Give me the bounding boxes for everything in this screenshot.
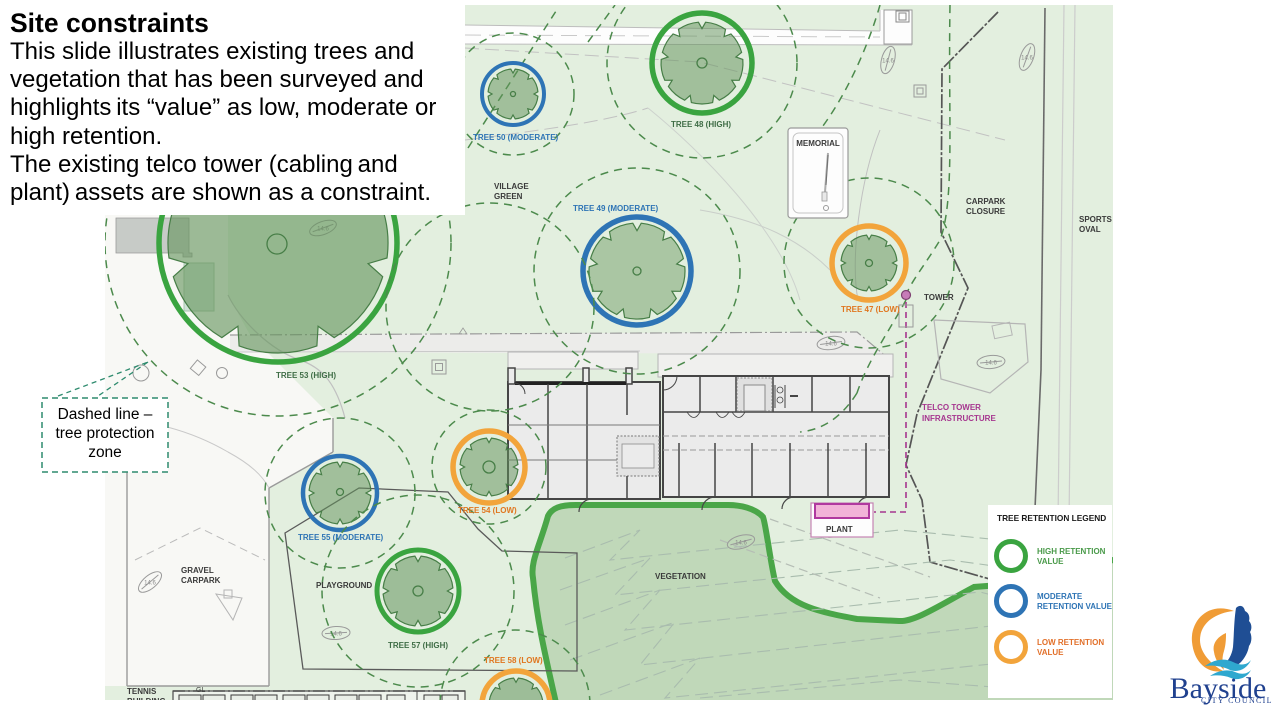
svg-text:OVAL: OVAL — [1079, 225, 1101, 234]
svg-text:VALUE: VALUE — [1037, 648, 1064, 657]
svg-text:INFRASTRUCTURE: INFRASTRUCTURE — [922, 414, 996, 423]
svg-text:14.6: 14.6 — [825, 342, 837, 348]
svg-text:SPORTS: SPORTS — [1079, 215, 1113, 224]
svg-text:14.6: 14.6 — [985, 361, 997, 367]
svg-text:MEMORIAL: MEMORIAL — [796, 139, 840, 148]
svg-text:VILLAGE: VILLAGE — [494, 182, 529, 191]
svg-text:TENNIS: TENNIS — [127, 687, 157, 696]
svg-text:RETENTION VALUE: RETENTION VALUE — [1037, 602, 1112, 611]
svg-text:CARPARK: CARPARK — [966, 197, 1006, 206]
svg-text:GL: GL — [196, 687, 205, 694]
svg-text:PLANT: PLANT — [826, 525, 853, 534]
svg-text:14.6: 14.6 — [1021, 56, 1033, 62]
svg-text:14.6: 14.6 — [144, 581, 156, 587]
svg-text:TELCO TOWER: TELCO TOWER — [922, 403, 981, 412]
svg-text:MODERATE: MODERATE — [1037, 592, 1083, 601]
svg-text:TREE 48 (HIGH): TREE 48 (HIGH) — [671, 120, 731, 129]
svg-text:PLAYGROUND: PLAYGROUND — [316, 581, 372, 590]
svg-text:BUILDING: BUILDING — [127, 697, 166, 706]
svg-text:TREE 55 (MODERATE): TREE 55 (MODERATE) — [298, 533, 384, 542]
svg-text:CARPARK: CARPARK — [181, 576, 221, 585]
svg-text:14.6: 14.6 — [735, 541, 747, 547]
svg-text:GRAVEL: GRAVEL — [181, 566, 214, 575]
svg-text:TREE 57 (HIGH): TREE 57 (HIGH) — [388, 641, 448, 650]
svg-text:CLOSURE: CLOSURE — [966, 207, 1006, 216]
svg-text:TREE RETENTION LEGEND: TREE RETENTION LEGEND — [997, 513, 1106, 523]
svg-text:14.6: 14.6 — [882, 59, 894, 65]
svg-text:VALUE: VALUE — [1037, 557, 1064, 566]
svg-text:TREE 49 (MODERATE): TREE 49 (MODERATE) — [573, 204, 659, 213]
svg-text:LOW RETENTION: LOW RETENTION — [1037, 638, 1104, 647]
svg-text:VEGETATION: VEGETATION — [655, 572, 706, 581]
svg-text:TREE 50 (MODERATE): TREE 50 (MODERATE) — [473, 133, 559, 142]
svg-text:TREE 47 (LOW): TREE 47 (LOW) — [841, 305, 900, 314]
svg-text:GREEN: GREEN — [494, 192, 523, 201]
svg-text:TOWER: TOWER — [924, 293, 954, 302]
svg-text:TREE 54 (LOW): TREE 54 (LOW) — [458, 506, 517, 515]
svg-text:HIGH RETENTION: HIGH RETENTION — [1037, 547, 1106, 556]
svg-text:TREE 53 (HIGH): TREE 53 (HIGH) — [276, 371, 336, 380]
svg-text:TREE 58 (LOW): TREE 58 (LOW) — [484, 656, 543, 665]
